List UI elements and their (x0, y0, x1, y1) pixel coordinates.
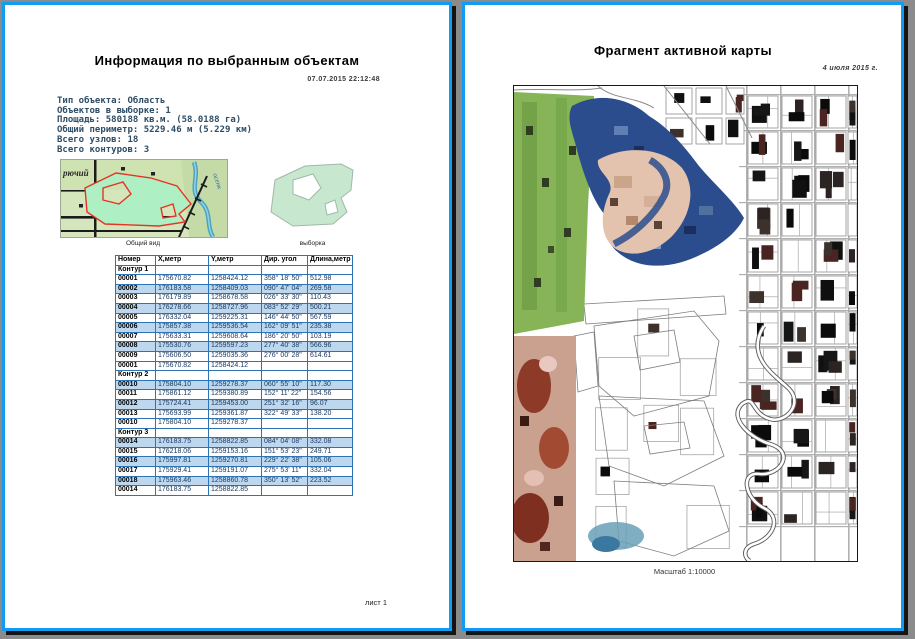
selection-polygon-image (263, 160, 362, 231)
map-title: Фрагмент активной карты (465, 43, 901, 58)
report-title: Информация по выбранным объектам (5, 53, 449, 68)
map-settlement-label: рючий (62, 168, 89, 178)
table-row: 00002176183.581258409.03090° 47' 04"269.… (116, 284, 353, 294)
contour-section-row: Контур 3 (116, 428, 353, 438)
table-row: 00017175929.411259191.07275° 53' 11"332.… (116, 467, 353, 477)
table-row: 00007175633.311259608.64186° 20' 50"103.… (116, 332, 353, 342)
table-row: 00014176183.751258822.85 (116, 486, 353, 496)
selection-caption: выборка (263, 240, 362, 247)
table-row: 00001175670.821258424.12 (116, 361, 353, 371)
table-row: 00005176332.041259225.31146° 44' 50"567.… (116, 313, 353, 323)
table-row: 00004176278.661258727.96083° 52' 29"500.… (116, 303, 353, 313)
table-header-row: НомерX,метрY,метрДир. уголДлина,метр (116, 256, 353, 266)
info-line: Всего контуров: 3 (57, 146, 252, 156)
table-row: 00010175804.101259278.37060° 55' 10"117.… (116, 380, 353, 390)
report-page-window[interactable]: Информация по выбранным объектам 07.07.2… (2, 2, 452, 631)
table-row: 00001175670.821258424.12358° 18' 50"512.… (116, 275, 353, 285)
map-scale-caption: Масштаб 1:10000 (513, 567, 856, 576)
table-row: 00009175606.501259035.36276° 00' 28"614.… (116, 351, 353, 361)
table-row: 00012175724.411259453.00251° 32' 16"96.0… (116, 399, 353, 409)
active-map-svg (514, 86, 857, 561)
active-map-image (513, 85, 858, 562)
table-row: 00013175693.991259361.87322° 49' 33"138.… (116, 409, 353, 419)
table-row: 00016175997.811259270.81229° 22' 38"105.… (116, 457, 353, 467)
map-date: 4 июля 2015 г. (465, 65, 878, 72)
table-row: 00003176179.891258678.58026° 33' 30"110.… (116, 294, 353, 304)
table-row: 00018175963.461258860.78350° 13' 52"223.… (116, 476, 353, 486)
table-row: 00011175861.121259380.89152° 11' 22"154.… (116, 390, 353, 400)
table-row: 00006175857.381259536.54162° 09' 51"235.… (116, 323, 353, 333)
map-page-window[interactable]: Фрагмент активной карты 4 июля 2015 г. (462, 2, 904, 631)
contour-section-row: Контур 2 (116, 371, 353, 381)
table-row: 00008175530.761259597.23277° 40' 38"566.… (116, 342, 353, 352)
table-row: 00015176218.061259153.16151° 53' 23"249.… (116, 447, 353, 457)
table-row: 00010175804.101259278.37 (116, 419, 353, 429)
overview-map-image: рючий осенк (61, 160, 227, 237)
overview-map-thumbnail: рючий осенк (60, 159, 228, 238)
contour-section-row: Контур 1 (116, 265, 353, 275)
coordinates-table: НомерX,метрY,метрДир. уголДлина,метрКонт… (115, 255, 353, 496)
report-timestamp: 07.07.2015 22:12:48 (5, 76, 380, 83)
table-row: 00014176183.751258822.85084° 04' 08"332.… (116, 438, 353, 448)
overview-caption: Общий вид (60, 240, 226, 247)
object-info-block: Тип объекта: ОбластьОбъектов в выборке: … (57, 97, 252, 155)
sheet-number: лист 1 (5, 598, 387, 607)
selection-thumbnail (263, 160, 362, 231)
